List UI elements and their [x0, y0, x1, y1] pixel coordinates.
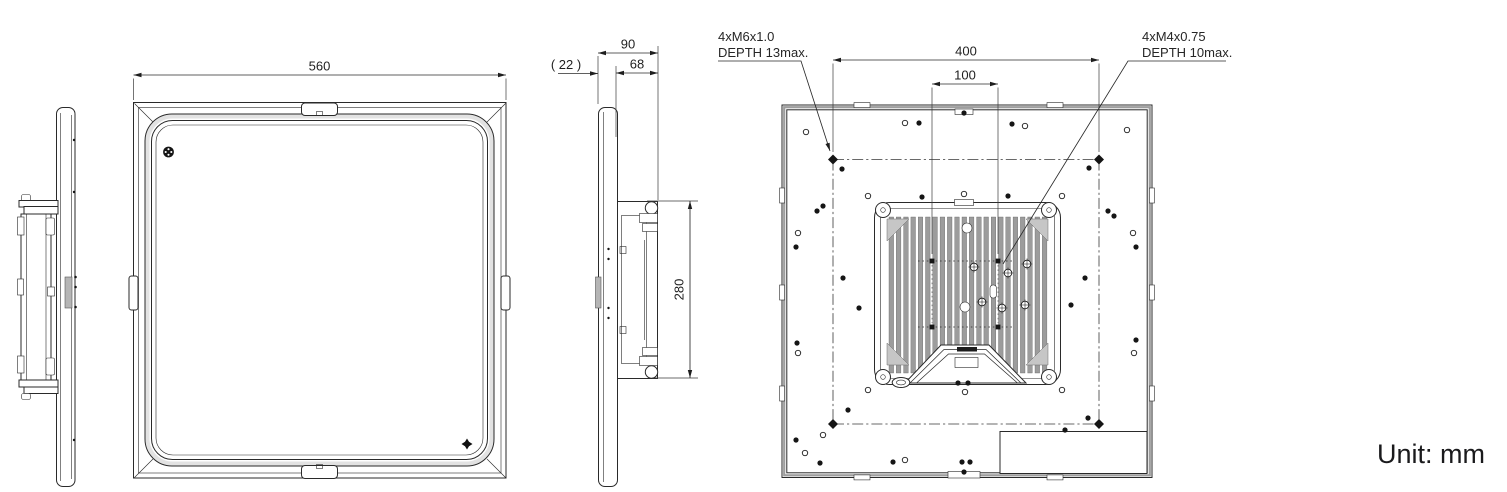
m4-vesa-hole [930, 259, 935, 264]
side-latch-tab [596, 277, 602, 308]
screw-hole [1068, 302, 1073, 307]
callout-m4-line1: 4xM4x0.75 [1142, 29, 1206, 44]
dim-arrow [688, 201, 692, 209]
rear-inner-frame [787, 110, 1147, 473]
dimension-side-depth-rear: 68 [616, 57, 658, 138]
mount-bracket-top-arm [19, 195, 58, 215]
left-profile-view [18, 108, 77, 487]
open-hole [1130, 230, 1135, 235]
open-hole [1059, 193, 1064, 198]
module-hole [960, 302, 970, 312]
open-hole [962, 389, 967, 394]
m4-vesa-hole [930, 325, 935, 330]
screw-hole [959, 459, 964, 464]
front-outer-frame [134, 103, 507, 479]
mount-bracket-bottom-arm [19, 380, 58, 400]
side-latch-tab [65, 277, 72, 308]
screw-hole [793, 244, 798, 249]
dim-arrow [590, 71, 598, 75]
screw-hole [955, 380, 960, 385]
open-hole [865, 387, 870, 392]
rear-box [618, 202, 658, 379]
dim-label-side-depth-total: 90 [621, 37, 635, 52]
dim-arrow [1091, 58, 1099, 62]
screw-hole [1009, 121, 1014, 126]
dim-label-front-width: 560 [309, 59, 331, 74]
screw-hole [793, 437, 798, 442]
front-marker-star [462, 439, 473, 450]
m6-mount-hole [1094, 419, 1104, 429]
corner-miter-lines [135, 104, 506, 478]
screw-hole [890, 459, 895, 464]
m6-leader-arrow [825, 143, 830, 151]
open-hole [1059, 387, 1064, 392]
callout-m6: 4xM6x1.0 DEPTH 13max. [718, 29, 808, 60]
m4-vesa-hole [996, 325, 1001, 330]
m6-leader [718, 61, 830, 151]
dim-arrow [498, 73, 506, 77]
dim-label-rear-vesa-span: 100 [954, 68, 976, 83]
heatsink-fin [1035, 217, 1040, 373]
dim-label-side-rear-height: 280 [672, 279, 687, 301]
screw-hole [814, 208, 819, 213]
front-bezel [145, 114, 494, 466]
screw-hole [1082, 275, 1087, 280]
open-hole [902, 457, 907, 462]
callout-m4-line2: DEPTH 10max. [1142, 45, 1232, 60]
heatsink-fin [911, 217, 916, 373]
screw-hole [961, 469, 966, 474]
edge-tabs [129, 103, 510, 479]
module-top-tab [955, 200, 974, 206]
screw-hole [1062, 427, 1067, 432]
rear-frame-band [784, 107, 1150, 475]
mount-bracket-plate [18, 214, 55, 380]
bottom-oval-port [892, 378, 910, 388]
screw-hole [916, 120, 921, 125]
dim-arrow [134, 73, 142, 77]
screw-hole [839, 166, 844, 171]
panel-dimension-drawing: 5609068( 22 )280400100 4xM6x1.0 DEPTH 13… [0, 0, 1507, 492]
open-hole [865, 193, 870, 198]
dim-label-side-depth-rear: 68 [630, 57, 644, 72]
dimension-rear-mount-span: 400 [833, 44, 1099, 153]
open-hole [902, 120, 907, 125]
dim-arrow [650, 51, 658, 55]
unit-label: Unit: mm [1377, 439, 1485, 469]
dim-arrow [650, 71, 658, 75]
screw-hole [840, 275, 845, 280]
heatsink-fin [1020, 217, 1025, 373]
screw-hole [817, 460, 822, 465]
screw-hole [1105, 208, 1110, 213]
m6-mount-hole [828, 155, 838, 165]
open-hole [803, 129, 808, 134]
open-hole [795, 230, 800, 235]
m6-mount-hole [1094, 155, 1104, 165]
m6-mount-hole [828, 419, 838, 429]
open-hole [820, 432, 825, 437]
screw-hole [856, 305, 861, 310]
heatsink-fin [896, 217, 901, 373]
panel-slab-outline [599, 108, 618, 487]
heatsink-fin [926, 217, 931, 373]
open-hole [795, 350, 800, 355]
m4-vesa-hole [996, 259, 1001, 264]
open-hole [802, 450, 807, 455]
front-view [129, 103, 510, 479]
screw-hole [967, 459, 972, 464]
side-profile-view [596, 108, 658, 487]
open-hole [1131, 350, 1136, 355]
callout-m6-line2: DEPTH 13max. [718, 45, 808, 60]
dim-arrow [616, 71, 624, 75]
screw-hole [794, 340, 799, 345]
screw-hole [1085, 415, 1090, 420]
front-inner-frame [139, 108, 502, 474]
screw-hole [820, 203, 825, 208]
dim-label-side-depth-front: ( 22 ) [551, 57, 581, 72]
open-hole [1124, 127, 1129, 132]
open-hole [961, 191, 966, 196]
dim-arrow [598, 51, 606, 55]
heatsink-fin [1013, 217, 1018, 373]
dim-arrow [990, 82, 998, 86]
dim-arrow [932, 82, 940, 86]
screw-hole [965, 380, 970, 385]
light-sensor-dot [163, 147, 174, 158]
open-hole [1022, 123, 1027, 128]
dim-arrow [688, 370, 692, 378]
heatsink-fin [1028, 217, 1033, 373]
heatsink-module [875, 200, 1061, 388]
screw-hole [1133, 337, 1138, 342]
screw-hole [1005, 193, 1010, 198]
screw-hole [1086, 165, 1091, 170]
module-slot [990, 285, 997, 298]
heatsink-fin [904, 217, 909, 373]
rear-view [780, 103, 1155, 480]
heatsink-fin [918, 217, 923, 373]
screw-hole [961, 110, 966, 115]
dimension-side-depth-front: ( 22 ) [551, 57, 598, 76]
dim-arrow [833, 58, 841, 62]
screw-hole [845, 407, 850, 412]
technical-drawing-page: 5609068( 22 )280400100 4xM6x1.0 DEPTH 13… [0, 0, 1507, 492]
heatsink-fin [999, 217, 1004, 373]
screw-hole [919, 194, 924, 199]
screw-hole [1111, 213, 1116, 218]
callout-m6-line1: 4xM6x1.0 [718, 29, 774, 44]
dim-label-rear-mount-span: 400 [955, 44, 977, 59]
module-hole [962, 223, 972, 233]
screw-hole [1133, 244, 1138, 249]
dimension-front-width: 560 [134, 59, 507, 101]
rating-label-plate [1000, 432, 1147, 474]
heatsink-fin [1006, 217, 1011, 373]
callout-m4: 4xM4x0.75 DEPTH 10max. [1142, 29, 1232, 60]
